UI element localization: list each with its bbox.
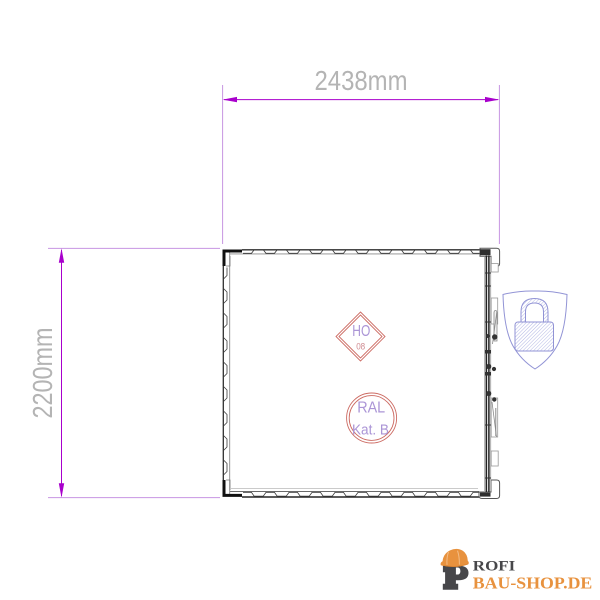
svg-text:HO: HO xyxy=(352,323,370,340)
svg-text:2200mm: 2200mm xyxy=(27,328,58,419)
svg-text:BAU-SHOP.DE: BAU-SHOP.DE xyxy=(473,573,593,592)
svg-text:ROFI: ROFI xyxy=(473,559,516,575)
svg-text:08: 08 xyxy=(356,342,365,353)
svg-text:RAL: RAL xyxy=(357,400,385,417)
svg-text:2438mm: 2438mm xyxy=(315,65,408,96)
svg-text:Kat. B: Kat. B xyxy=(352,422,389,439)
